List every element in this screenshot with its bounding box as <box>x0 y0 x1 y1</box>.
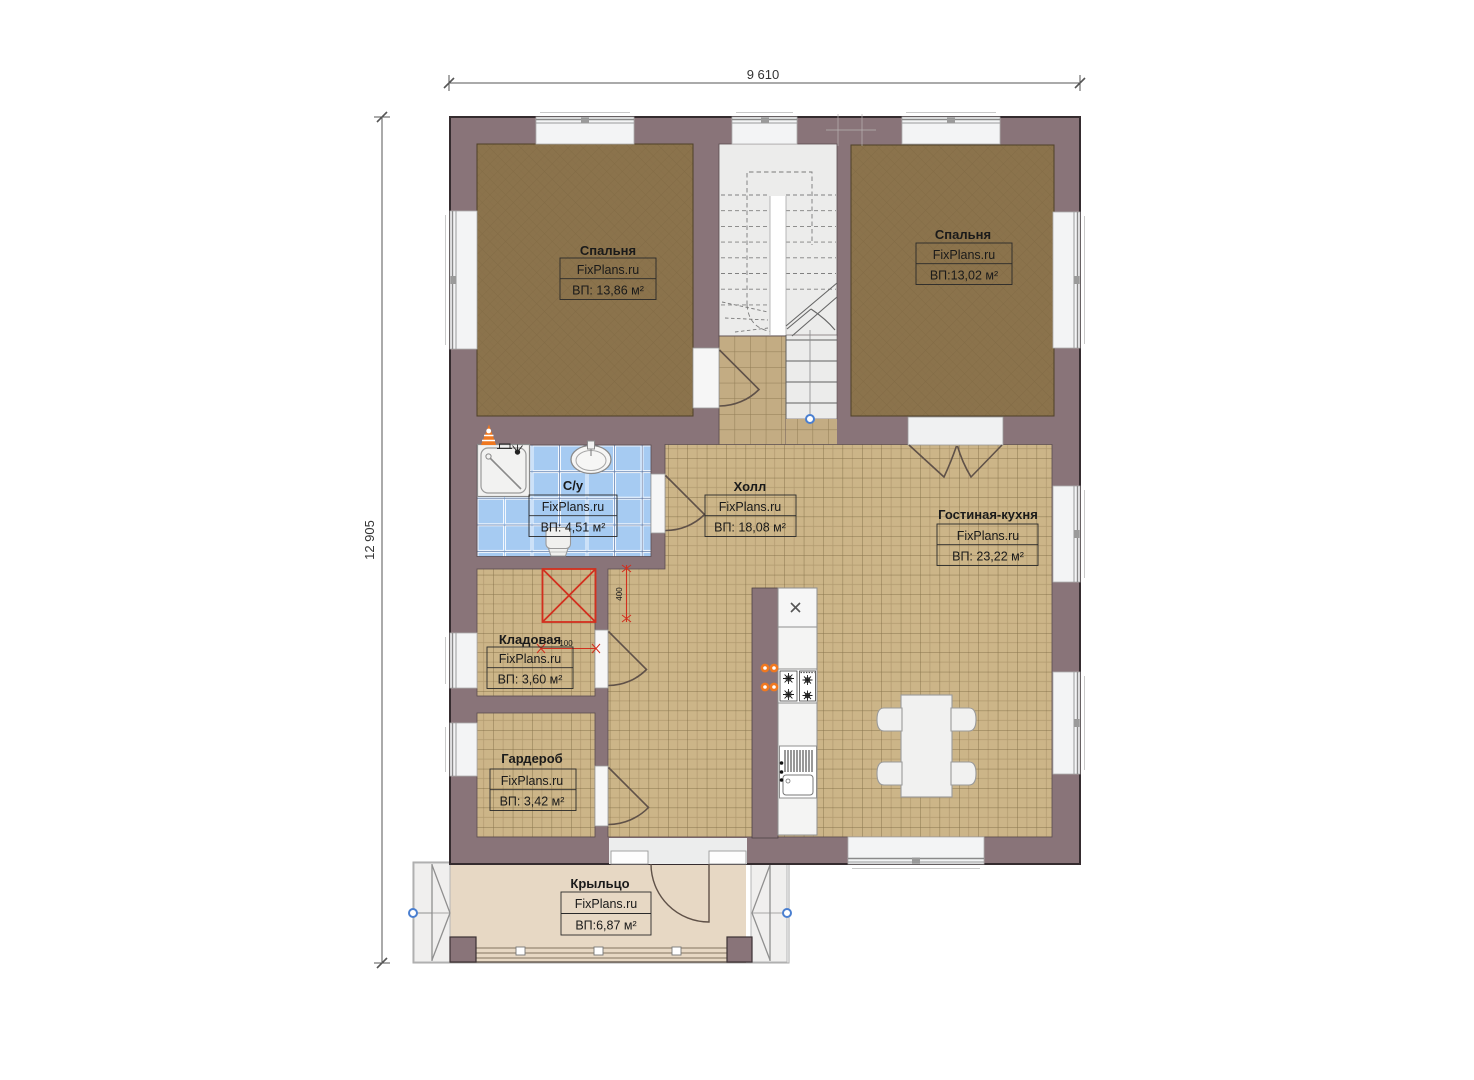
svg-text:ВП: 3,60 м²: ВП: 3,60 м² <box>498 673 563 687</box>
svg-text:9 610: 9 610 <box>747 67 780 82</box>
svg-text:ВП:13,02 м²: ВП:13,02 м² <box>930 269 998 283</box>
svg-text:400: 400 <box>615 587 624 601</box>
svg-text:Спальня: Спальня <box>935 227 991 242</box>
svg-text:FixPlans.ru: FixPlans.ru <box>957 529 1020 543</box>
svg-text:Холл: Холл <box>734 479 767 494</box>
svg-text:Спальня: Спальня <box>580 243 636 258</box>
svg-text:FixPlans.ru: FixPlans.ru <box>542 500 605 514</box>
svg-text:FixPlans.ru: FixPlans.ru <box>575 897 638 911</box>
svg-text:ВП:6,87 м²: ВП:6,87 м² <box>575 919 636 933</box>
svg-text:Гардероб: Гардероб <box>501 751 562 766</box>
svg-text:С/у: С/у <box>563 478 584 493</box>
svg-text:FixPlans.ru: FixPlans.ru <box>577 263 640 277</box>
svg-text:ВП: 13,86 м²: ВП: 13,86 м² <box>572 284 644 298</box>
svg-text:FixPlans.ru: FixPlans.ru <box>501 774 564 788</box>
svg-text:Кладовая: Кладовая <box>499 632 561 647</box>
svg-text:12 905: 12 905 <box>362 520 377 560</box>
svg-text:FixPlans.ru: FixPlans.ru <box>719 500 782 514</box>
svg-text:Гостиная-кухня: Гостиная-кухня <box>938 507 1038 522</box>
svg-text:ВП: 23,22 м²: ВП: 23,22 м² <box>952 550 1024 564</box>
svg-text:ВП: 3,42 м²: ВП: 3,42 м² <box>500 795 565 809</box>
svg-text:Крыльцо: Крыльцо <box>570 876 629 891</box>
svg-text:FixPlans.ru: FixPlans.ru <box>933 248 996 262</box>
svg-text:ВП: 18,08 м²: ВП: 18,08 м² <box>714 521 786 535</box>
svg-text:ВП: 4,51 м²: ВП: 4,51 м² <box>541 521 606 535</box>
svg-text:FixPlans.ru: FixPlans.ru <box>499 652 562 666</box>
